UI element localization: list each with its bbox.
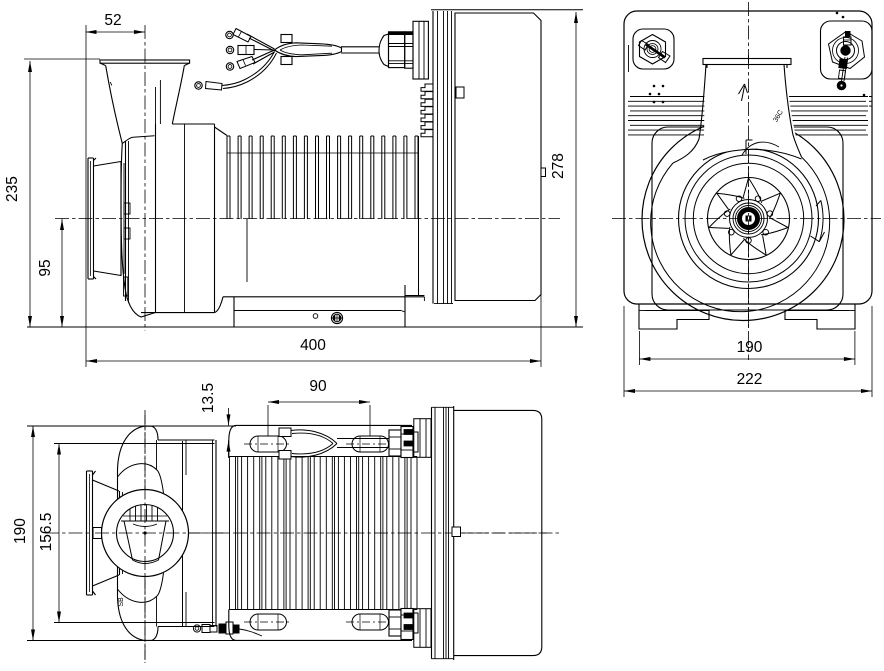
- svg-text:13.5: 13.5: [200, 383, 217, 413]
- svg-text:52: 52: [104, 12, 121, 29]
- svg-text:95: 95: [37, 259, 54, 276]
- svg-text:190: 190: [12, 518, 29, 544]
- svg-text:400: 400: [300, 337, 326, 354]
- svg-text:156.5: 156.5: [38, 513, 55, 552]
- svg-text:222: 222: [737, 371, 763, 388]
- svg-text:235: 235: [4, 176, 21, 202]
- svg-text:278: 278: [550, 153, 567, 179]
- svg-text:190: 190: [737, 339, 763, 356]
- svg-text:90: 90: [309, 378, 327, 395]
- svg-text:SB: SB: [118, 597, 125, 607]
